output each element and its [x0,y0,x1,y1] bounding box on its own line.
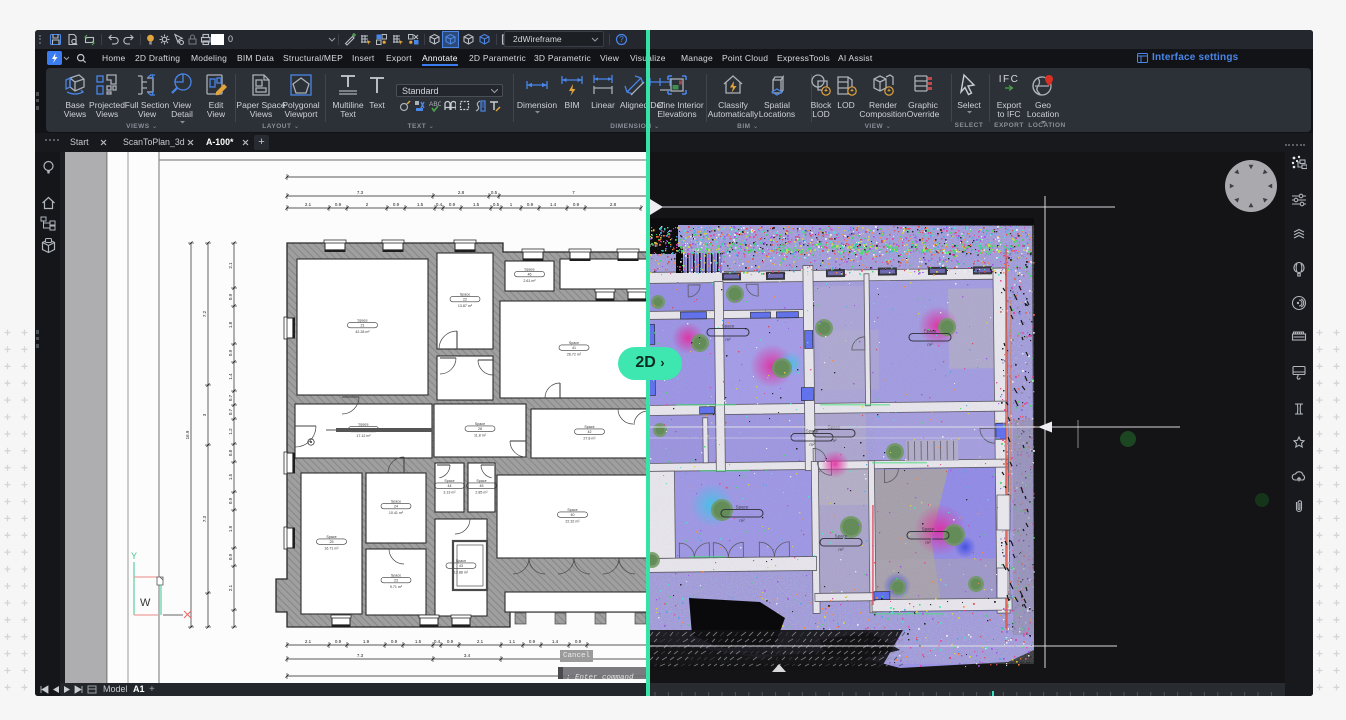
svg-text:Space: Space [567,508,577,512]
svg-text:ABC: ABC [429,101,441,108]
svg-text:42: 42 [588,430,592,434]
svg-text:Space: Space [569,341,579,345]
svg-text:1.9: 1.9 [228,525,233,532]
svg-text:Space: Space [444,479,454,483]
svg-text:Space: Space [456,559,466,563]
svg-text:Space: Space [584,425,594,429]
svg-text:Space: Space [358,422,368,426]
svg-text:2.1: 2.1 [305,202,312,207]
svg-text:0.9: 0.9 [527,202,534,207]
svg-text:0.9: 0.9 [228,497,233,504]
svg-text:1.2: 1.2 [228,428,233,435]
svg-text:27.8 m²: 27.8 m² [583,437,596,441]
svg-text:43: 43 [459,564,463,568]
svg-text:0.4: 0.4 [436,202,443,207]
svg-text:1.5: 1.5 [473,202,480,207]
svg-text:13.88 m²: 13.88 m² [454,571,469,575]
svg-text:1.9: 1.9 [363,639,370,644]
svg-text:42.28 m²: 42.28 m² [355,330,370,334]
svg-text:1.5: 1.5 [417,202,424,207]
svg-text:0.9: 0.9 [529,639,536,644]
svg-text:1.5: 1.5 [415,639,422,644]
svg-text:7.2: 7.2 [202,310,207,317]
svg-text:W: W [140,597,151,609]
svg-text:Space: Space [357,318,367,322]
svg-text:23: 23 [394,579,398,583]
svg-text:Space: Space [391,499,401,503]
svg-text:1.4: 1.4 [552,639,559,644]
svg-text:0.5: 0.5 [491,190,498,195]
svg-text:0.5: 0.5 [493,202,500,207]
svg-text:2.61 m²: 2.61 m² [523,279,536,283]
svg-text:2.8: 2.8 [458,190,465,195]
svg-text:26.72 m²: 26.72 m² [567,353,582,357]
svg-text:1.5: 1.5 [228,473,233,480]
svg-text:22: 22 [463,298,467,302]
svg-text:Space: Space [922,527,935,532]
svg-text:0.9: 0.9 [449,202,456,207]
svg-text:Space: Space [476,479,486,483]
svg-text:0.9: 0.9 [228,293,233,300]
svg-text:1.1: 1.1 [509,639,516,644]
svg-text:m²: m² [925,540,931,545]
svg-text:0.9: 0.9 [228,349,233,356]
svg-text:0.4: 0.4 [434,639,441,644]
svg-text:Space: Space [326,535,336,539]
svg-text:Space: Space [722,324,735,329]
svg-text:0.9: 0.9 [447,639,454,644]
svg-text:21: 21 [361,324,365,328]
svg-text:0.8: 0.8 [228,449,233,456]
svg-text:28: 28 [478,427,482,431]
svg-text:Space: Space [460,292,470,296]
svg-text:2.1: 2.1 [228,262,233,269]
svg-text:17.12 m²: 17.12 m² [356,434,371,438]
svg-text:Space: Space [736,505,749,510]
svg-text:0.7: 0.7 [228,408,233,415]
svg-text:13.87 m²: 13.87 m² [458,304,473,308]
svg-text:0.9: 0.9 [393,202,400,207]
svg-text:7.3: 7.3 [202,515,207,522]
svg-text:1.4: 1.4 [228,373,233,380]
svg-text:Space: Space [475,422,485,426]
svg-text:0.9: 0.9 [335,202,342,207]
svg-text:46: 46 [528,273,532,277]
svg-text:3.4: 3.4 [464,653,471,658]
svg-text:1.4: 1.4 [550,202,557,207]
svg-text:41: 41 [572,346,576,350]
svg-text:m²: m² [838,547,844,552]
svg-text:2.8: 2.8 [610,202,617,207]
svg-text:24: 24 [394,505,398,509]
svg-text:10.41 m²: 10.41 m² [389,511,404,515]
svg-text:m²: m² [725,337,731,342]
svg-text:Y: Y [131,551,137,561]
svg-text:Space: Space [806,429,819,434]
svg-text:m²: m² [809,442,815,447]
svg-text:40: 40 [571,513,575,517]
svg-text:0.9: 0.9 [228,553,233,560]
svg-text:0.9: 0.9 [575,639,582,644]
svg-text:m²: m² [739,518,745,523]
svg-text:44: 44 [448,484,452,488]
svg-text:?: ? [619,35,624,44]
svg-text:7.3: 7.3 [357,190,364,195]
svg-text:2.1: 2.1 [228,584,233,591]
svg-text:11.8 m²: 11.8 m² [474,434,487,438]
svg-text:m²: m² [927,342,933,347]
svg-text:25: 25 [330,540,334,544]
svg-text:16.9: 16.9 [185,430,190,439]
svg-text:Space: Space [391,573,401,577]
svg-text:0.9: 0.9 [573,202,580,207]
svg-text:2.85 m²: 2.85 m² [475,491,488,495]
svg-text:Space: Space [835,534,848,539]
svg-text:16.71 m²: 16.71 m² [324,547,339,551]
svg-text:1.8: 1.8 [228,321,233,328]
svg-text:45: 45 [480,484,484,488]
svg-text:2.1: 2.1 [305,639,312,644]
svg-text:3.13 m²: 3.13 m² [443,491,456,495]
svg-text:0.9: 0.9 [391,639,398,644]
svg-text:22.32 m²: 22.32 m² [565,520,580,524]
svg-text:0.7: 0.7 [228,394,233,401]
svg-text:7.3: 7.3 [357,653,364,658]
svg-text:2.1: 2.1 [477,639,484,644]
svg-text:9.71 m²: 9.71 m² [390,585,403,589]
svg-text:0.9: 0.9 [335,639,342,644]
svg-text:Space: Space [524,267,534,271]
